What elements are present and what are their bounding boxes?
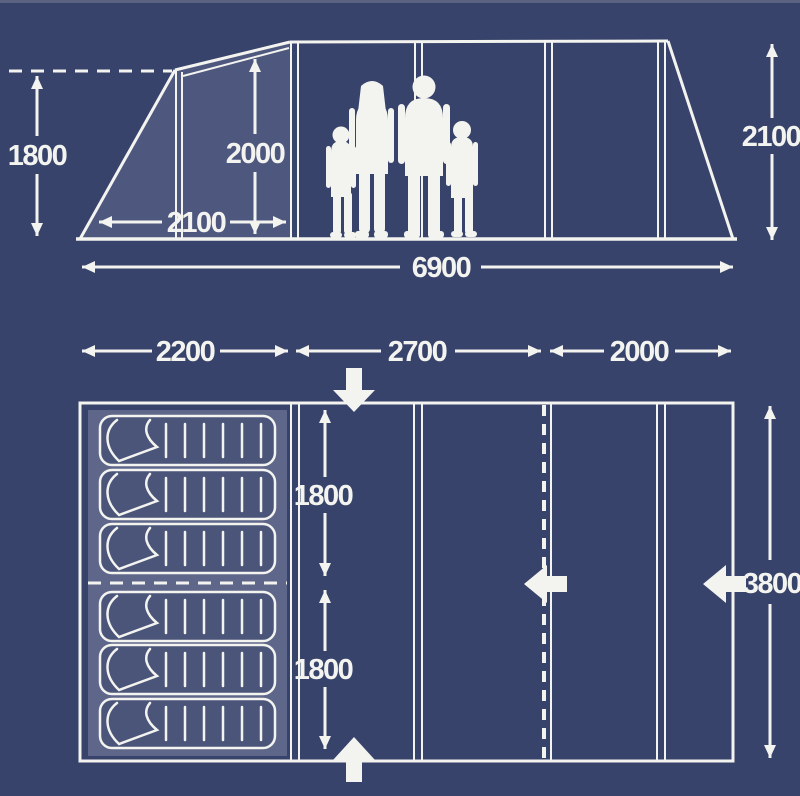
sleeping-bag	[100, 645, 275, 694]
dim-label-total-length: 6900	[412, 252, 471, 284]
dim-label-front-height: 1800	[8, 140, 67, 172]
ridge-line	[290, 41, 668, 42]
sleeping-bag	[100, 699, 275, 748]
dim-label-living-width: 2700	[388, 336, 447, 368]
diagram-canvas: 1800 2000 2100 2100 6900	[0, 0, 800, 796]
top-edge-highlight	[0, 0, 800, 3]
dim-label-bedroom-width: 2200	[156, 336, 215, 368]
tent-dimensions-diagram: 1800 2000 2100 2100 6900	[0, 0, 800, 796]
sleeping-bag	[100, 416, 275, 465]
dim-label-rear-height: 2100	[742, 121, 800, 153]
dim-label-porch-length: 2100	[167, 207, 226, 239]
sleeping-bag	[100, 592, 275, 641]
dim-label-porch-width: 2000	[610, 336, 669, 368]
dim-label-living-height: 2000	[226, 138, 285, 170]
sleeping-bag	[100, 524, 275, 573]
dim-label-bedroom-depth-front: 1800	[294, 480, 353, 512]
dim-label-bedroom-depth-rear: 1800	[294, 654, 353, 686]
dim-label-total-depth: 3800	[743, 568, 800, 600]
sleeping-bag	[100, 470, 275, 519]
